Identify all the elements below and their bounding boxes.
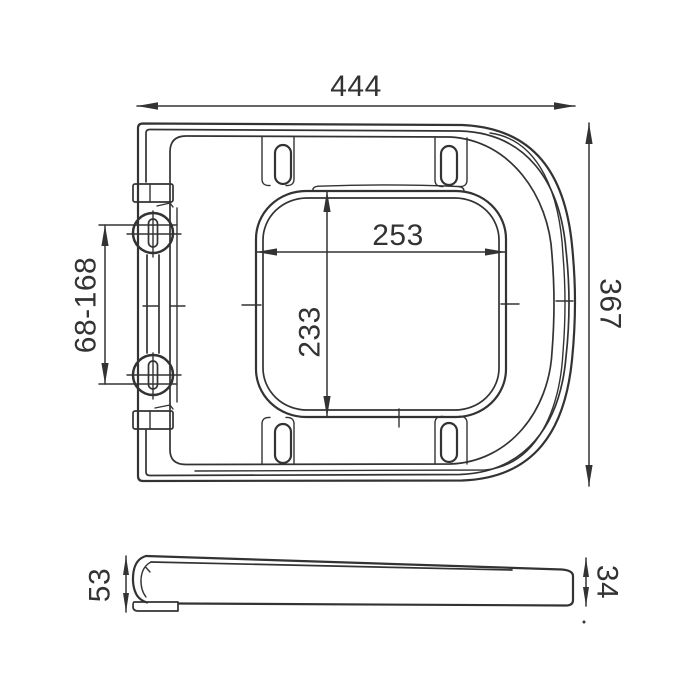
arrowhead-top [585, 123, 592, 144]
dim-front-height: 53 [84, 556, 130, 612]
dim-cutout-depth: 233 [294, 191, 331, 417]
lid-edge-highlight [195, 133, 565, 471]
lid-outer-edge [138, 124, 575, 482]
dim-label-front-height: 53 [84, 568, 117, 602]
pocket-line [262, 137, 270, 186]
arrowhead-bottom [583, 587, 589, 606]
arrowhead-bottom [323, 396, 330, 417]
slot [441, 423, 457, 462]
dim-hinge-spacing: 68-168 [70, 225, 177, 384]
pocket-line [459, 416, 467, 464]
dim-overall-width: 444 [137, 70, 575, 110]
arrowhead-right [485, 248, 506, 255]
arrowhead-right [554, 102, 575, 110]
bumper-slot-bottom-left [262, 417, 294, 464]
pocket-line [459, 138, 467, 187]
top-view: 444 367 253 233 [70, 70, 627, 486]
seat-lid-outlines [138, 124, 575, 482]
arrowhead-top [123, 556, 129, 575]
toilet-seat-technical-drawing: 444 367 253 233 [0, 0, 700, 700]
arrowhead-top [323, 191, 330, 212]
bumper-slot-top-right [435, 138, 467, 187]
dim-rear-height: 34 [583, 558, 624, 624]
arrowhead-left [137, 102, 158, 110]
arrowhead-left [256, 248, 277, 255]
drawing-canvas: 444 367 253 233 [0, 0, 700, 700]
dim-label-overall-width: 444 [330, 70, 382, 103]
hinge-bracket-plate [133, 602, 178, 611]
side-view: 53 34 [84, 556, 624, 624]
dim-label-cutout-width: 253 [372, 219, 424, 252]
dim-label-rear-height: 34 [591, 565, 624, 599]
arrowhead-bottom [101, 363, 108, 384]
arrowhead-top [101, 225, 108, 246]
bumper-slot-top-left [262, 137, 294, 186]
dim-overall-depth: 367 [585, 123, 626, 486]
bumper-slot-bottom-right [435, 416, 467, 464]
dim-label-overall-depth: 367 [594, 278, 627, 330]
seat-profile [133, 556, 573, 611]
dim-cutout-width: 253 [256, 219, 506, 256]
stray-dot [583, 621, 586, 624]
arrowhead-bottom [123, 593, 129, 612]
slot [275, 145, 291, 184]
arrowhead-top [583, 558, 589, 577]
dim-label-hinge-spacing: 68-168 [70, 257, 103, 353]
profile-nose-tick [146, 568, 150, 573]
slot [275, 424, 291, 463]
pocket-line [262, 417, 270, 464]
slot [441, 146, 457, 185]
arrowhead-bottom [585, 465, 592, 486]
dim-label-cutout-depth: 233 [294, 306, 327, 358]
